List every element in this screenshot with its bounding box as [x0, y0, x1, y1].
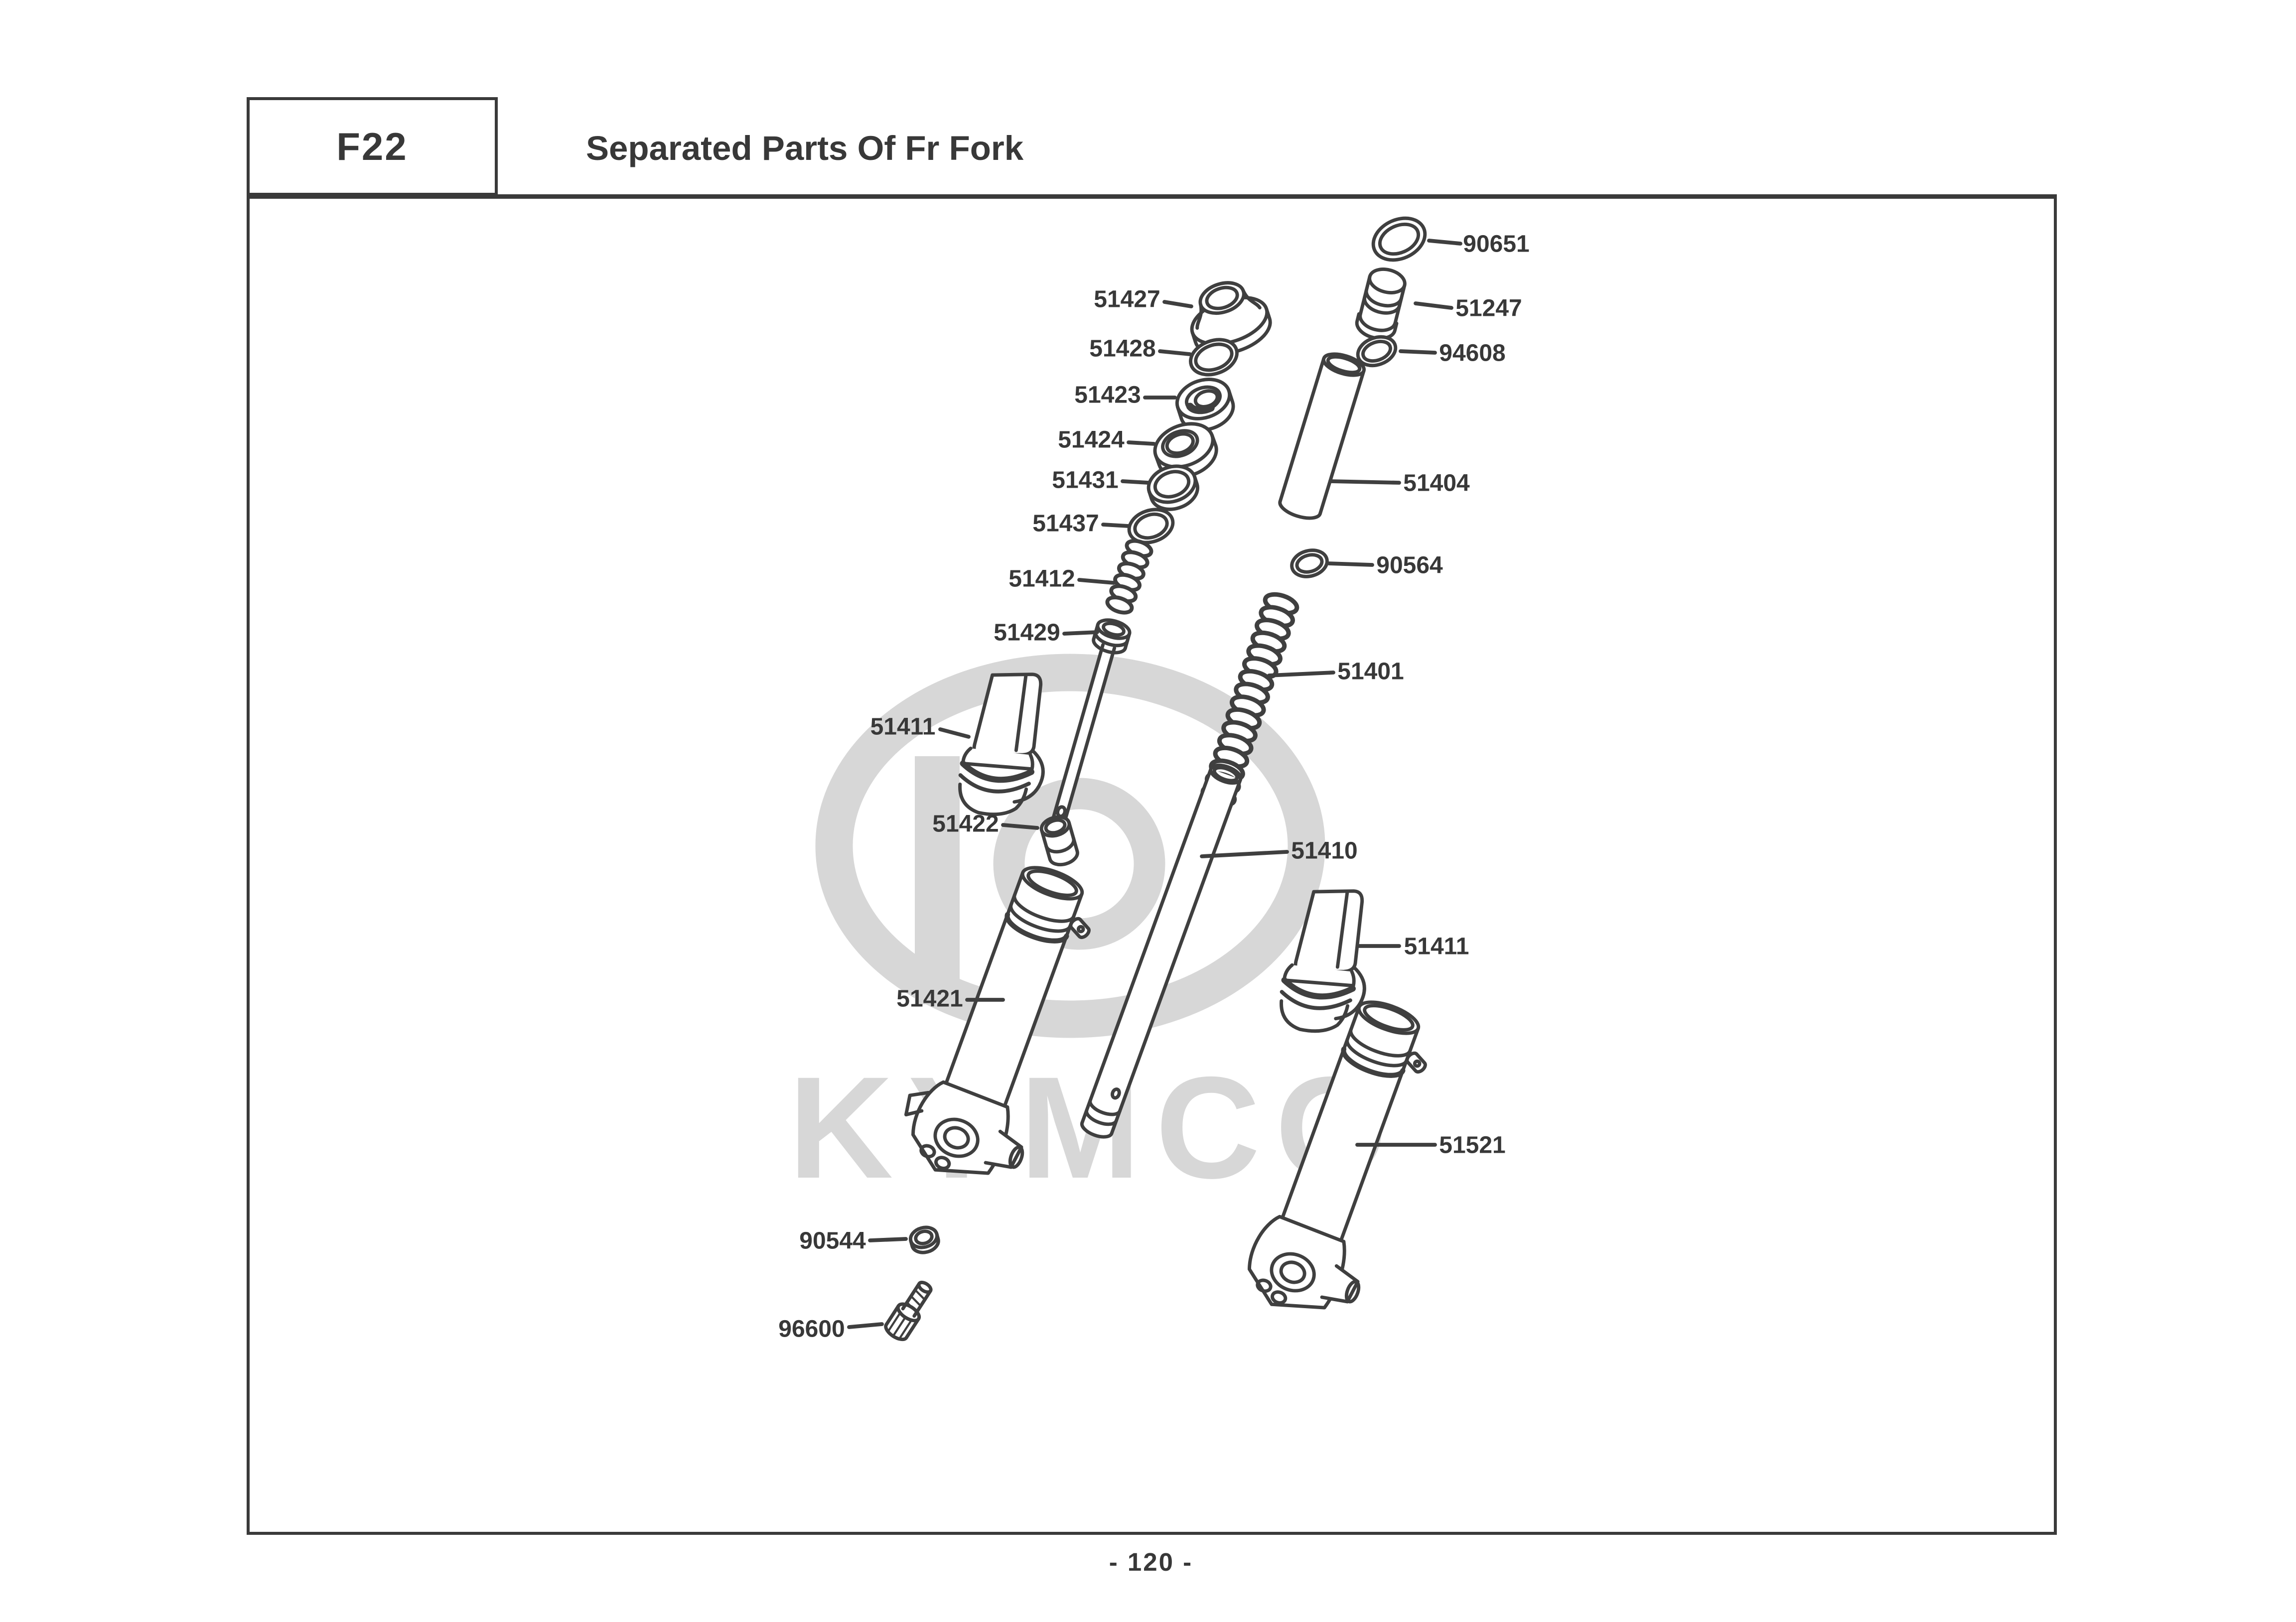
part-label-51422: 51422 [932, 811, 999, 837]
part-label-51411-right: 51411 [1404, 933, 1469, 959]
fork-exploded-diagram: KYMCO [0, 0, 2296, 1622]
part-oring-90651 [1367, 210, 1432, 268]
part-label-90651: 90651 [1463, 231, 1529, 257]
leader-51412 [1079, 580, 1114, 583]
leader-90564 [1329, 563, 1372, 565]
watermark-k-bar-icon [915, 756, 960, 1004]
page-number: - 120 - [0, 1548, 2296, 1578]
part-label-51428: 51428 [1089, 335, 1155, 362]
part-bush-51422 [1039, 814, 1080, 868]
leader-51437 [1103, 525, 1129, 526]
leader-96600 [849, 1324, 882, 1327]
part-label-51404: 51404 [1403, 470, 1470, 496]
part-label-51424: 51424 [1058, 426, 1125, 453]
part-label-51411-left: 51411 [870, 713, 936, 740]
part-oring-90564 [1289, 546, 1330, 580]
leader-51247 [1416, 303, 1451, 308]
part-label-51521: 51521 [1439, 1132, 1505, 1158]
leader-51401 [1269, 673, 1333, 676]
leader-90544 [870, 1239, 906, 1240]
part-tube-51404 [1278, 350, 1367, 523]
part-label-90564: 90564 [1376, 552, 1443, 578]
part-washer-90544 [908, 1224, 941, 1255]
leader-51429 [1064, 632, 1097, 634]
part-label-94608: 94608 [1439, 340, 1505, 366]
part-label-51429: 51429 [994, 619, 1060, 646]
leader-51411-left [940, 729, 969, 737]
part-label-51412: 51412 [1008, 565, 1075, 592]
part-label-51431: 51431 [1052, 467, 1118, 493]
leader-51404 [1330, 481, 1399, 483]
part-spring-51412 [1105, 538, 1153, 616]
leader-51431 [1123, 481, 1148, 483]
leader-51424 [1129, 442, 1154, 444]
part-label-90544: 90544 [799, 1227, 866, 1254]
part-label-51427: 51427 [1094, 286, 1160, 312]
part-cap-51247 [1354, 266, 1409, 342]
part-label-51247: 51247 [1455, 295, 1522, 321]
part-label-51401: 51401 [1337, 658, 1404, 684]
leader-51427 [1164, 302, 1191, 306]
part-label-51423: 51423 [1074, 382, 1141, 408]
part-label-51421: 51421 [896, 985, 963, 1012]
catalog-page: F22 Separated Parts Of Fr Fork KYMCO [0, 0, 2296, 1622]
part-label-51437: 51437 [1032, 510, 1099, 537]
part-label-96600: 96600 [778, 1316, 845, 1342]
part-bolt-96600 [883, 1278, 937, 1343]
leader-94608 [1401, 351, 1435, 353]
part-ring-51431 [1144, 460, 1202, 515]
leader-90651 [1429, 241, 1460, 244]
part-label-51410: 51410 [1291, 837, 1357, 864]
leader-51428 [1160, 351, 1190, 354]
